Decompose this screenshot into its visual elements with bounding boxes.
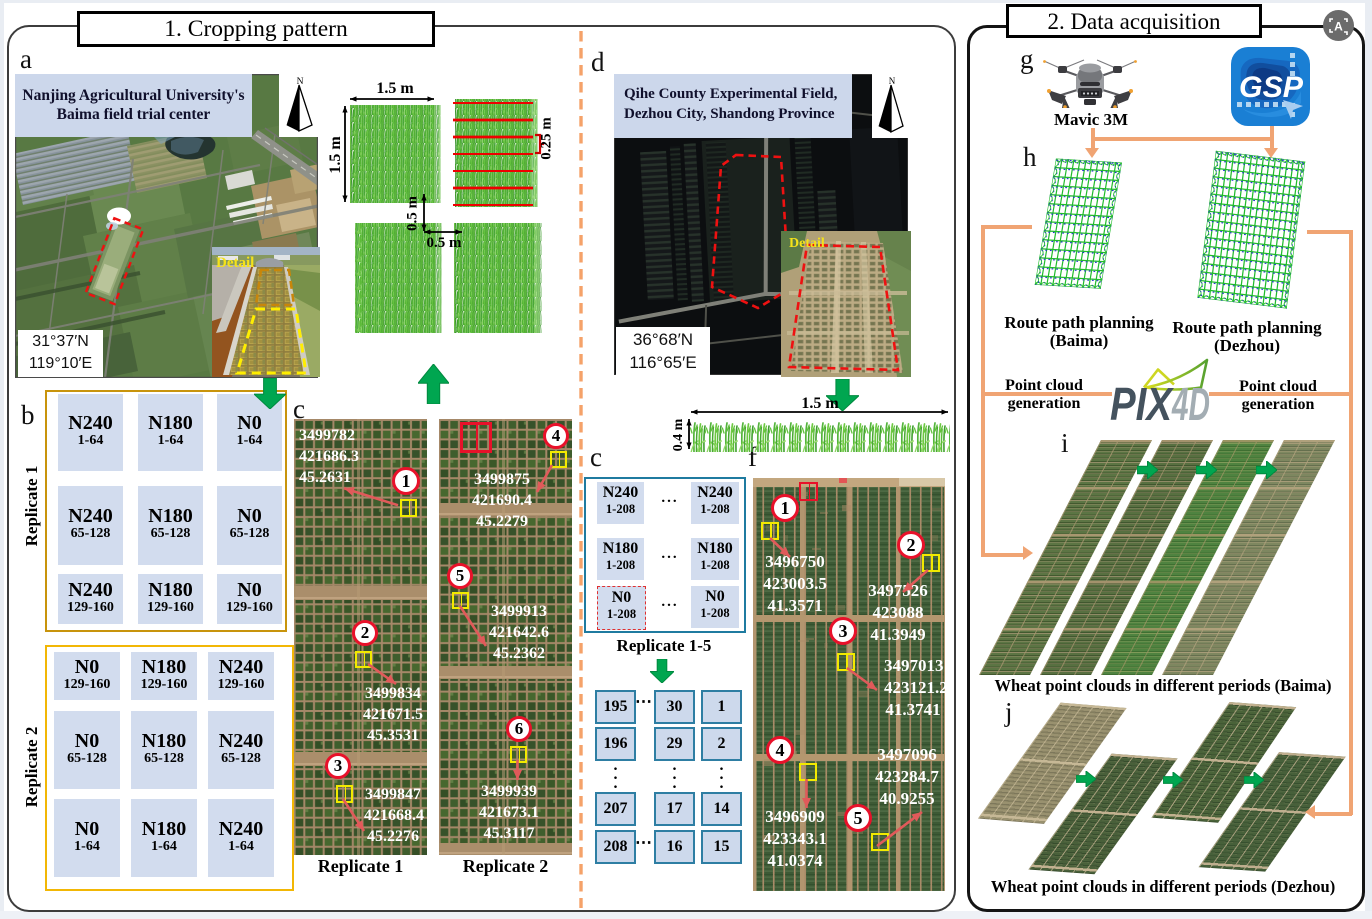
svg-text:Detail: Detail: [216, 255, 254, 271]
svg-text:Detail: Detail: [789, 236, 825, 251]
svg-text:A: A: [1334, 20, 1343, 34]
svg-text:4D: 4D: [1171, 378, 1210, 425]
svg-text:N: N: [889, 76, 896, 86]
svg-text:PIX: PIX: [1110, 378, 1174, 425]
svg-text:N: N: [297, 77, 304, 87]
